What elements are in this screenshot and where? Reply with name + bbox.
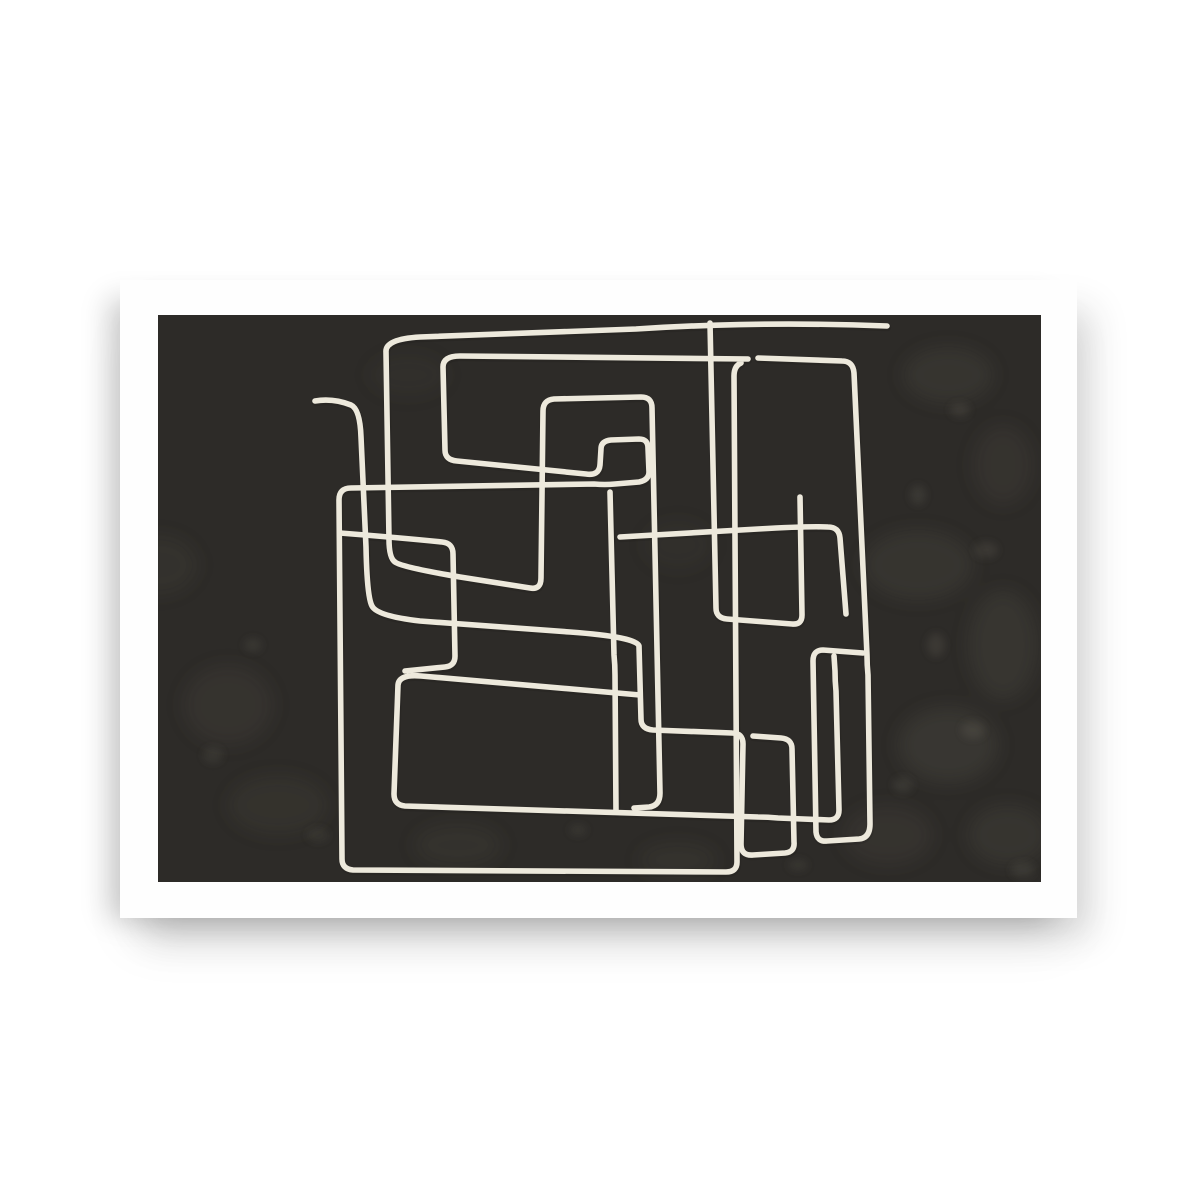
- maze-line-art: [158, 315, 1041, 882]
- art-canvas: [158, 315, 1041, 882]
- page-background: [0, 0, 1200, 1200]
- poster: [120, 280, 1077, 918]
